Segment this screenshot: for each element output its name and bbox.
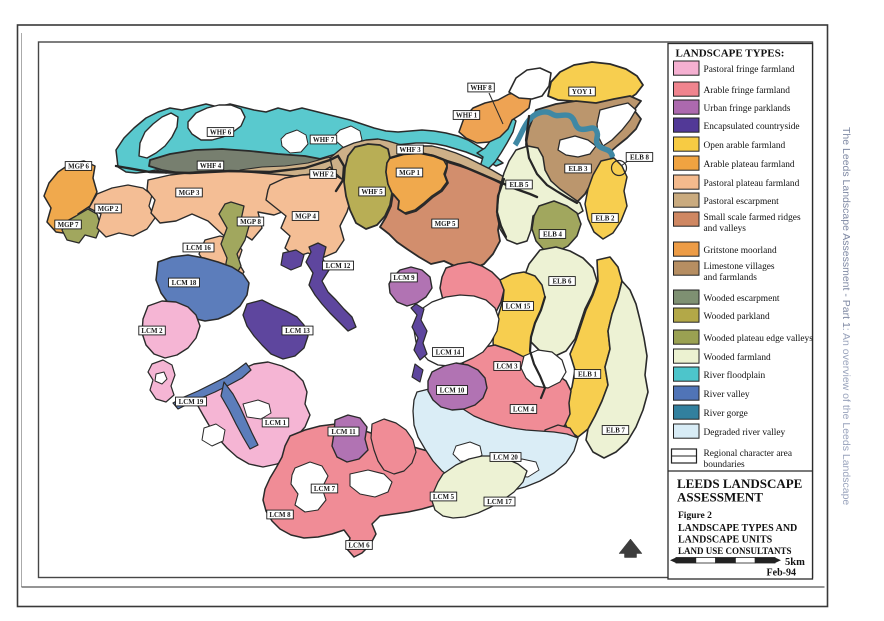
svg-text:WHF 3: WHF 3 (399, 147, 421, 154)
svg-text:LCM 6: LCM 6 (348, 542, 370, 549)
svg-text:MGP 8: MGP 8 (240, 219, 261, 226)
svg-text:LCM 11: LCM 11 (331, 429, 356, 436)
svg-text:Wooded plateau edge valleys: Wooded plateau edge valleys (704, 334, 814, 344)
svg-text:LCM 1: LCM 1 (265, 420, 287, 427)
svg-text:ELB 3: ELB 3 (569, 166, 589, 173)
svg-text:LCM 7: LCM 7 (314, 486, 336, 493)
svg-text:ASSESSMENT: ASSESSMENT (677, 490, 763, 505)
svg-text:LAND USE CONSULTANTS: LAND USE CONSULTANTS (678, 546, 792, 556)
svg-text:Open arable farmland: Open arable farmland (704, 140, 786, 151)
svg-text:Regional character area: Regional character area (704, 449, 793, 459)
svg-text:Limestone villages: Limestone villages (704, 262, 775, 272)
svg-text:Gritstone moorland: Gritstone moorland (704, 246, 777, 256)
svg-text:WHF 8: WHF 8 (470, 85, 492, 92)
svg-text:Pastoral plateau farmland: Pastoral plateau farmland (704, 178, 800, 189)
svg-text:MGP 2: MGP 2 (98, 206, 119, 213)
svg-text:Urban fringe parklands: Urban fringe parklands (704, 103, 791, 114)
svg-text:River floodplain: River floodplain (704, 370, 766, 381)
svg-text:LCM 13: LCM 13 (285, 328, 310, 335)
svg-text:and valleys: and valleys (704, 224, 747, 234)
svg-text:ELB 7: ELB 7 (606, 427, 626, 434)
svg-text:Figure 2: Figure 2 (678, 511, 712, 521)
svg-text:LCM 4: LCM 4 (513, 406, 535, 413)
svg-text:boundaries: boundaries (704, 460, 745, 470)
svg-text:WHF 5: WHF 5 (361, 189, 383, 196)
svg-text:LANDSCAPE TYPES:: LANDSCAPE TYPES: (676, 48, 785, 60)
svg-text:LCM 20: LCM 20 (493, 454, 518, 461)
svg-text:Encapsulated countryside: Encapsulated countryside (704, 122, 800, 132)
svg-text:Wooded parkland: Wooded parkland (704, 312, 770, 322)
svg-text:ELB 4: ELB 4 (543, 231, 563, 238)
svg-text:YOY 1: YOY 1 (572, 89, 593, 96)
svg-text:LCM 3: LCM 3 (496, 363, 518, 370)
svg-text:LANDSCAPE UNITS: LANDSCAPE UNITS (678, 535, 773, 546)
svg-text:ELB 8: ELB 8 (630, 154, 650, 161)
svg-text:Pastoral fringe farmland: Pastoral fringe farmland (704, 64, 795, 75)
svg-text:MGP 7: MGP 7 (58, 222, 79, 229)
svg-text:LANDSCAPE TYPES AND: LANDSCAPE TYPES AND (678, 523, 797, 534)
svg-text:River valley: River valley (704, 390, 750, 400)
svg-text:WHF 7: WHF 7 (313, 137, 335, 144)
svg-text:ELB 1: ELB 1 (578, 371, 598, 378)
svg-text:MGP 5: MGP 5 (435, 221, 456, 228)
svg-text:Wooded escarpment: Wooded escarpment (704, 294, 780, 304)
svg-text:MGP 3: MGP 3 (179, 190, 200, 197)
svg-text:WHF 2: WHF 2 (312, 171, 334, 178)
svg-text:Degraded river valley: Degraded river valley (704, 428, 786, 438)
svg-text:ELB 2: ELB 2 (596, 215, 616, 222)
svg-text:LCM 8: LCM 8 (269, 512, 291, 519)
svg-text:MGP 6: MGP 6 (68, 163, 89, 170)
svg-text:Small scale farmed ridges: Small scale farmed ridges (704, 212, 801, 223)
svg-text:Arable fringe farmland: Arable fringe farmland (704, 85, 791, 96)
svg-text:Wooded farmland: Wooded farmland (704, 352, 772, 363)
svg-text:WHF 6: WHF 6 (210, 129, 232, 136)
svg-text:LCM 14: LCM 14 (436, 349, 461, 356)
svg-text:River gorge: River gorge (704, 409, 748, 419)
svg-text:LCM 19: LCM 19 (179, 399, 204, 406)
svg-text:WHF 1: WHF 1 (456, 112, 478, 119)
svg-text:ELB 6: ELB 6 (553, 278, 573, 285)
svg-text:LCM 9: LCM 9 (393, 275, 415, 282)
svg-text:MGP 1: MGP 1 (399, 170, 420, 177)
svg-text:LCM 2: LCM 2 (141, 328, 163, 335)
svg-text:LCM 16: LCM 16 (186, 245, 211, 252)
svg-text:and farmlands: and farmlands (704, 272, 758, 283)
svg-text:LCM 15: LCM 15 (506, 303, 531, 310)
svg-text:The Leeds Landscape Assessment: The Leeds Landscape Assessment - Part 1:… (840, 127, 852, 505)
svg-text:Arable plateau farmland: Arable plateau farmland (704, 159, 795, 170)
svg-text:MGP 4: MGP 4 (295, 213, 316, 220)
svg-text:LCM 18: LCM 18 (172, 280, 197, 287)
svg-text:LCM 5: LCM 5 (433, 494, 455, 501)
svg-text:5km: 5km (785, 557, 805, 568)
svg-text:ELB 5: ELB 5 (510, 182, 530, 189)
svg-text:Pastoral escarpment: Pastoral escarpment (704, 197, 780, 207)
svg-text:LCM 10: LCM 10 (440, 387, 465, 394)
svg-text:LCM 17: LCM 17 (487, 499, 512, 506)
svg-text:Feb-94: Feb-94 (767, 568, 796, 579)
svg-text:LCM 12: LCM 12 (326, 263, 351, 270)
svg-text:WHF 4: WHF 4 (200, 163, 222, 170)
